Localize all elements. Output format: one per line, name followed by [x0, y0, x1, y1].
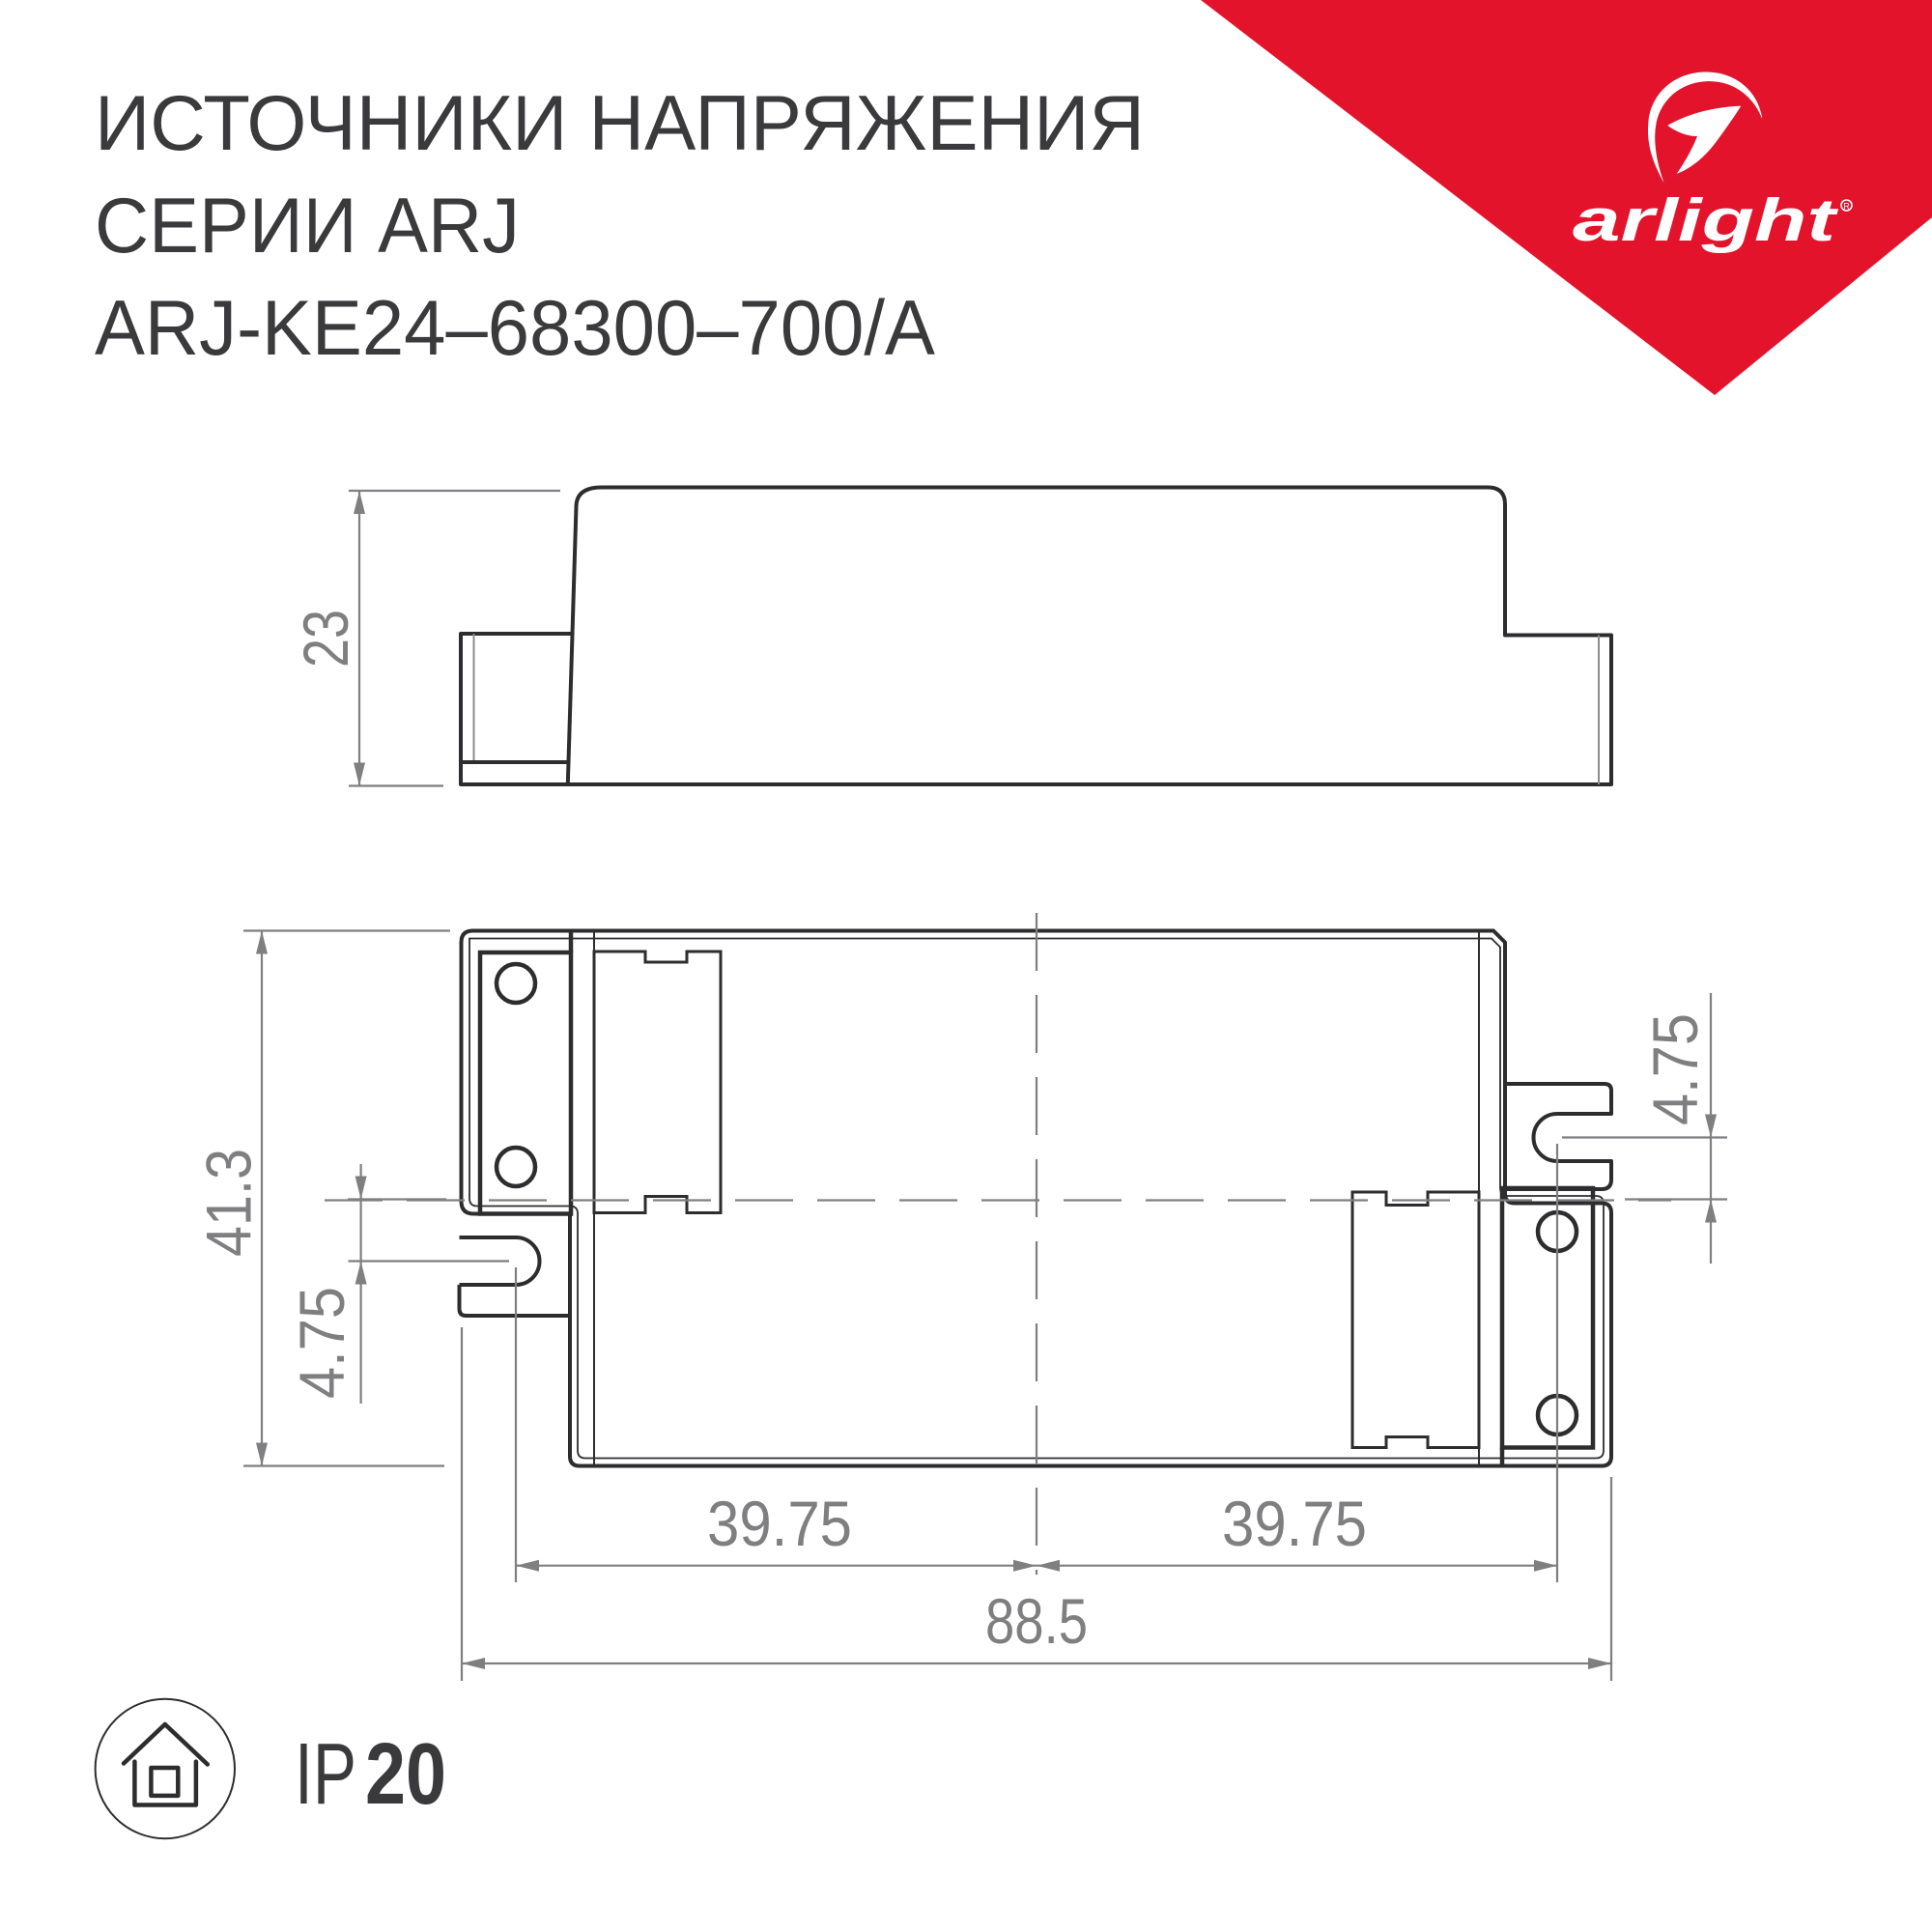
svg-text:4.75: 4.75	[286, 1287, 357, 1399]
svg-text:arlight: arlight	[1573, 187, 1838, 254]
svg-text:20: 20	[365, 1726, 446, 1823]
svg-text:ИСТОЧНИКИ НАПРЯЖЕНИЯ: ИСТОЧНИКИ НАПРЯЖЕНИЯ	[95, 80, 1145, 167]
svg-text:39.75: 39.75	[707, 1488, 852, 1559]
svg-text:IP: IP	[295, 1726, 356, 1823]
svg-text:4.75: 4.75	[1639, 1013, 1711, 1125]
svg-text:39.75: 39.75	[1222, 1488, 1367, 1559]
svg-text:88.5: 88.5	[985, 1585, 1088, 1657]
svg-text:23: 23	[290, 610, 361, 668]
svg-text:ARJ-KE24–68300–700/А: ARJ-KE24–68300–700/А	[95, 285, 935, 372]
svg-text:СЕРИИ ARJ: СЕРИИ ARJ	[95, 183, 520, 270]
svg-text:R: R	[1843, 202, 1850, 212]
svg-text:41.3: 41.3	[193, 1149, 265, 1257]
